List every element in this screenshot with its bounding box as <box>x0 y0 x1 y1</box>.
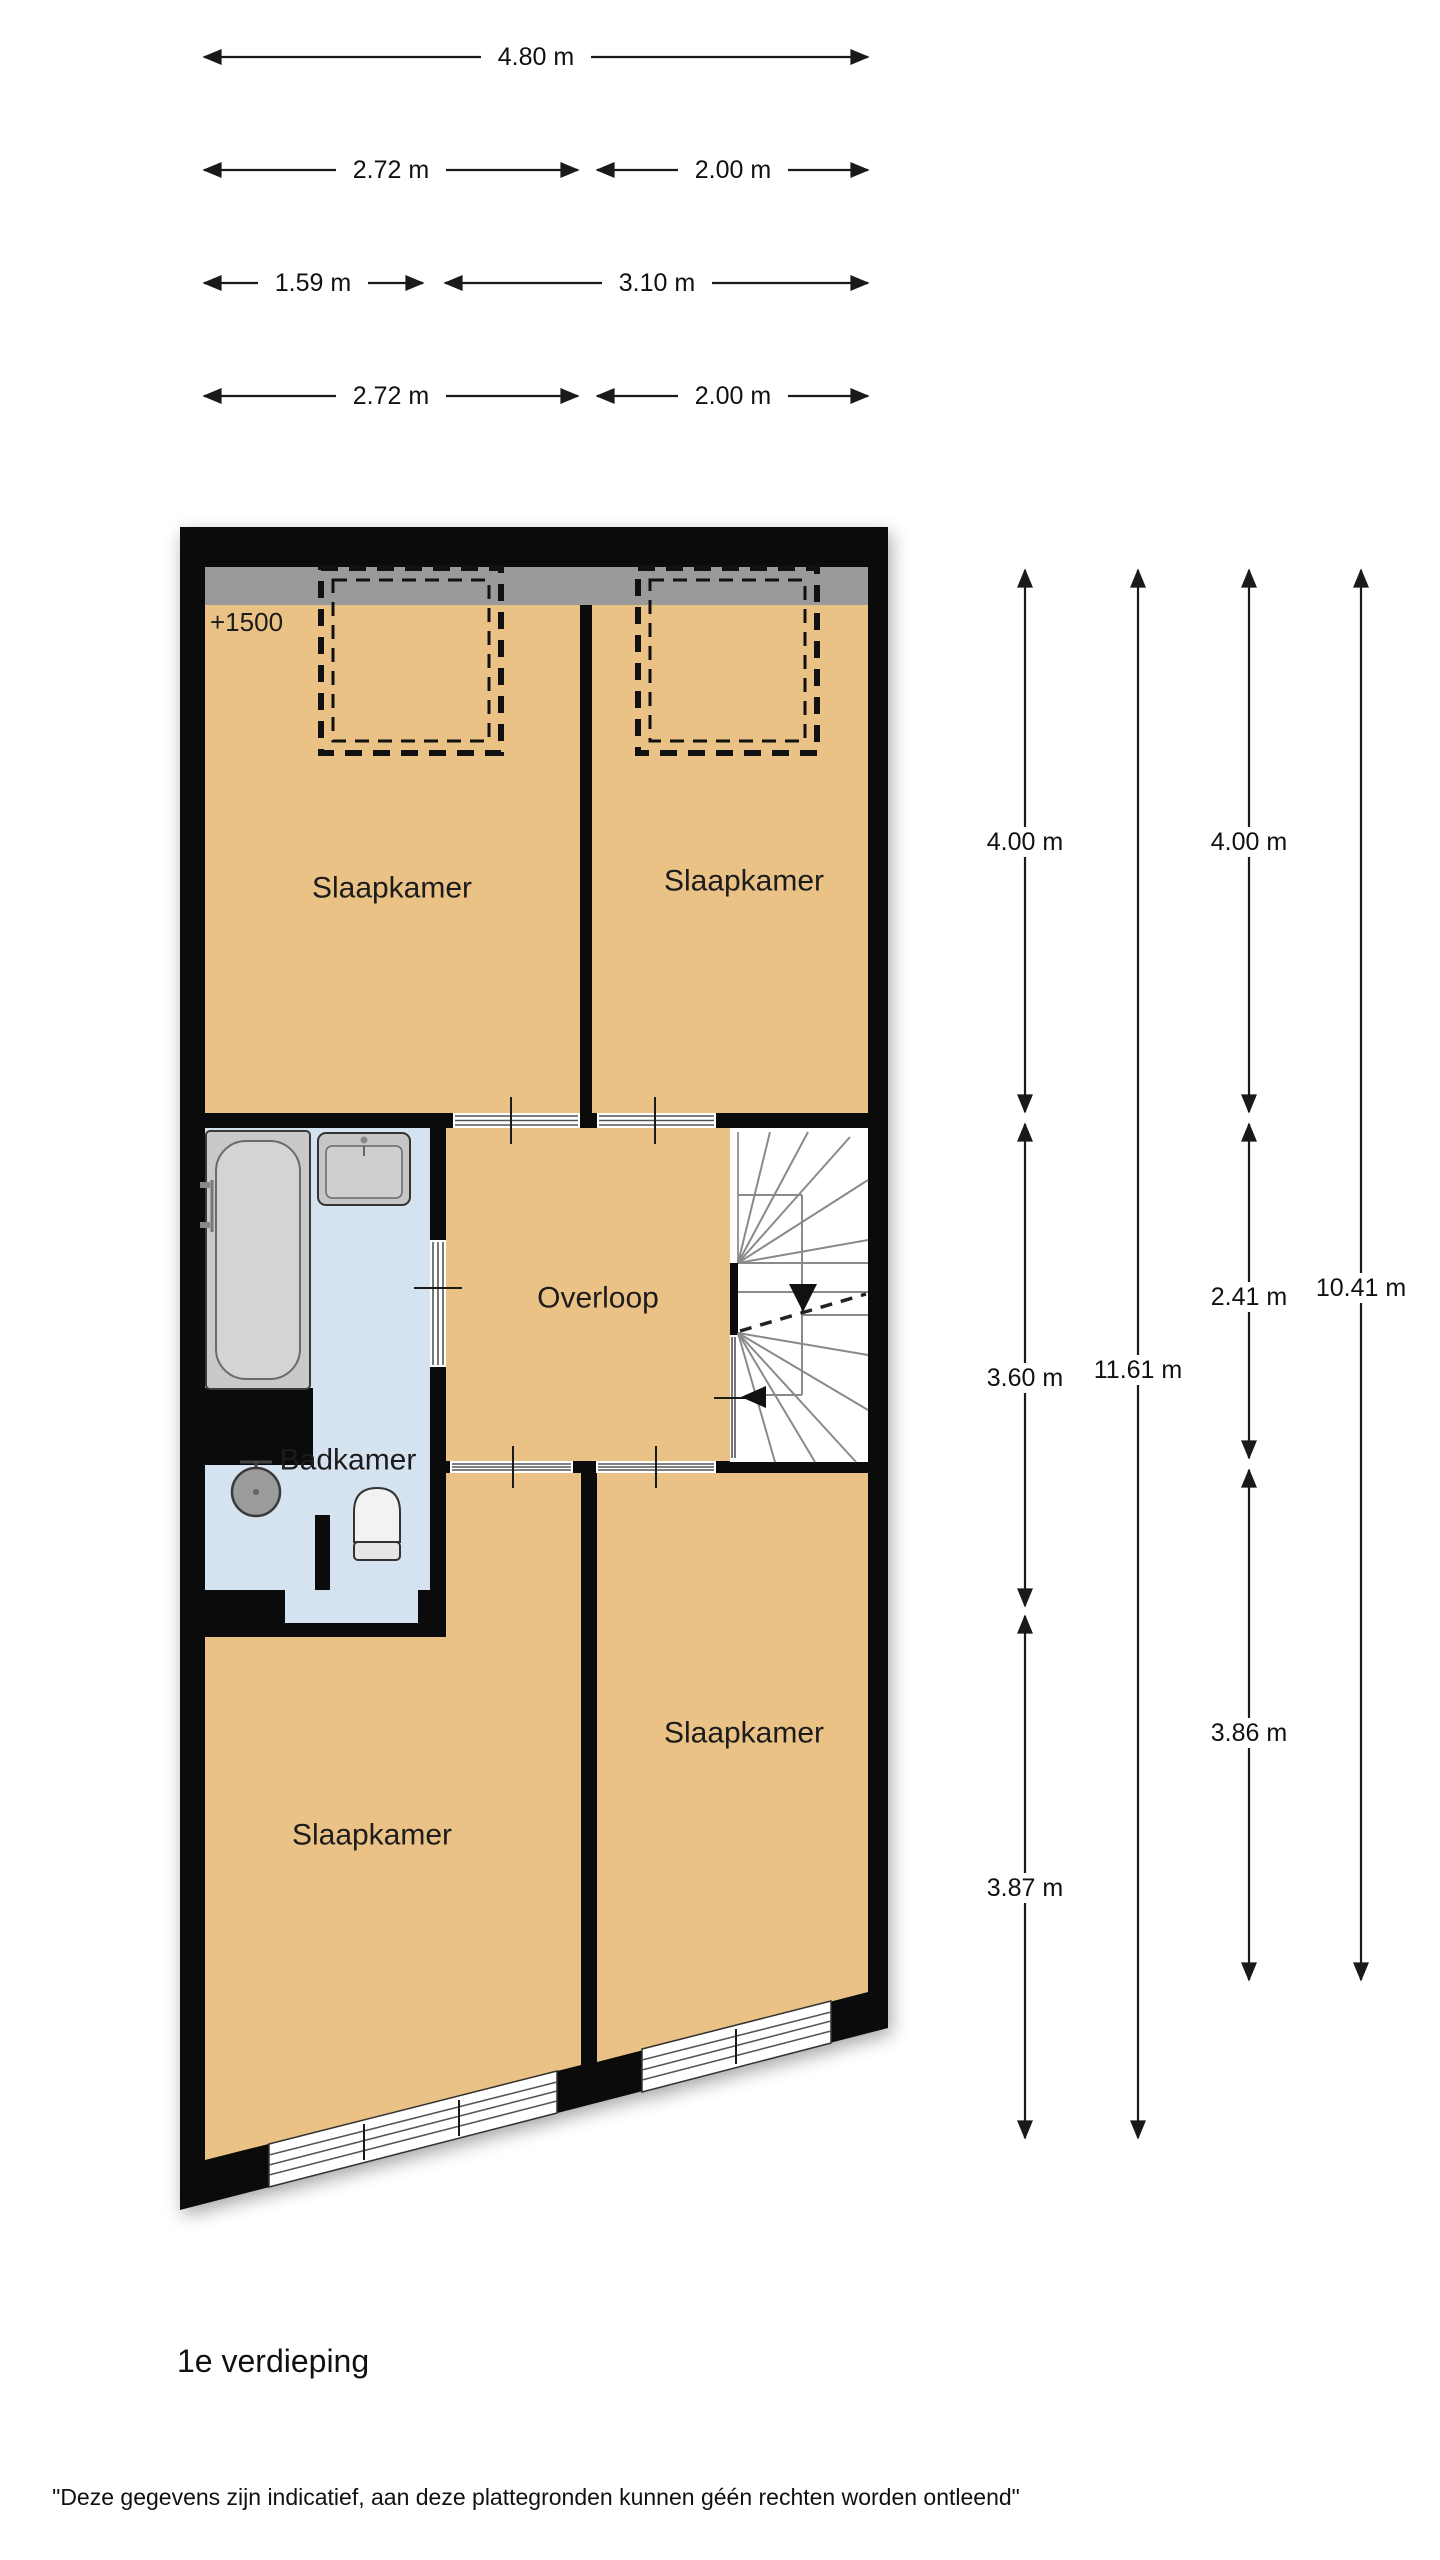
dim-right-col-2: 11.61 m <box>1080 570 1196 2138</box>
bedroom-bottom-right-label: Slaapkamer <box>664 1717 824 1750</box>
dim-right-col-3: 4.00 m 2.41 m 3.86 m <box>1191 570 1307 1980</box>
bedroom-bottom-right-floor <box>597 1473 868 2062</box>
bedroom-top-right-floor <box>592 605 868 1113</box>
dim-bottom-right-width: 2.00 m <box>695 382 771 410</box>
dim-landing-depth: 2.41 m <box>1211 1283 1287 1311</box>
dim-top-row-1: 4.80 m <box>204 43 868 71</box>
dim-total-width: 4.80 m <box>498 43 574 71</box>
floor-plan-drawing: 4.80 m 2.72 m 2.00 m 1.59 m 3.10 m 2.72 … <box>0 0 1440 2560</box>
dim-bedrooms-depth: 4.00 m <box>987 828 1063 856</box>
low-ceiling-band <box>205 567 868 605</box>
dim-bathroom-depth: 3.60 m <box>987 1364 1063 1392</box>
bedroom-top-left-floor <box>205 605 580 1113</box>
dim-left-width: 2.72 m <box>353 156 429 184</box>
dim-bottom-left-width: 2.72 m <box>353 382 429 410</box>
dim-total-depth-left: 11.61 m <box>1094 1356 1182 1384</box>
dim-bottom-right-depth: 3.86 m <box>1211 1719 1287 1747</box>
dim-bottom-left-depth: 3.87 m <box>987 1874 1063 1902</box>
dim-right-width: 2.00 m <box>695 156 771 184</box>
toilet-partition-wall <box>315 1515 330 1590</box>
bathroom-toilet-nook-floor <box>285 1590 418 1623</box>
floor-plan-page: 4.80 m 2.72 m 2.00 m 1.59 m 3.10 m 2.72 … <box>0 0 1440 2560</box>
landing-label: Overloop <box>537 1282 659 1315</box>
dim-right-col-4: 10.41 m <box>1303 570 1419 1980</box>
dim-bedrooms-depth-right: 4.00 m <box>1211 828 1287 856</box>
bathroom-label: Badkamer <box>280 1444 417 1477</box>
bedroom-top-left-label: Slaapkamer <box>312 872 472 905</box>
toilet <box>354 1488 400 1560</box>
dim-top-row-3: 1.59 m 3.10 m <box>204 269 868 297</box>
dim-total-depth-right: 10.41 m <box>1316 1274 1406 1302</box>
dim-bathroom-width: 1.59 m <box>275 269 351 297</box>
dim-top-row-2: 2.72 m 2.00 m <box>204 156 868 184</box>
bathtub <box>200 1131 310 1389</box>
dim-right-col-1: 4.00 m 3.60 m 3.87 m <box>967 570 1083 2138</box>
sink-faucet-icon <box>361 1137 368 1144</box>
floor-plan: +1500 Slaapkamer Slaapkamer Overloop Bad… <box>180 527 888 2210</box>
sink <box>318 1133 410 1205</box>
floor-title: 1e verdieping <box>177 2343 369 2379</box>
disclaimer-text: "Deze gegevens zijn indicatief, aan deze… <box>52 2484 1020 2510</box>
ceiling-height-annotation: +1500 <box>210 607 283 637</box>
dim-top-row-4: 2.72 m 2.00 m <box>204 382 868 410</box>
dim-landing-width: 3.10 m <box>619 269 695 297</box>
stair-partition-wall <box>730 1263 738 1335</box>
bedroom-top-right-label: Slaapkamer <box>664 865 824 898</box>
bedroom-bottom-left-label: Slaapkamer <box>292 1819 452 1852</box>
